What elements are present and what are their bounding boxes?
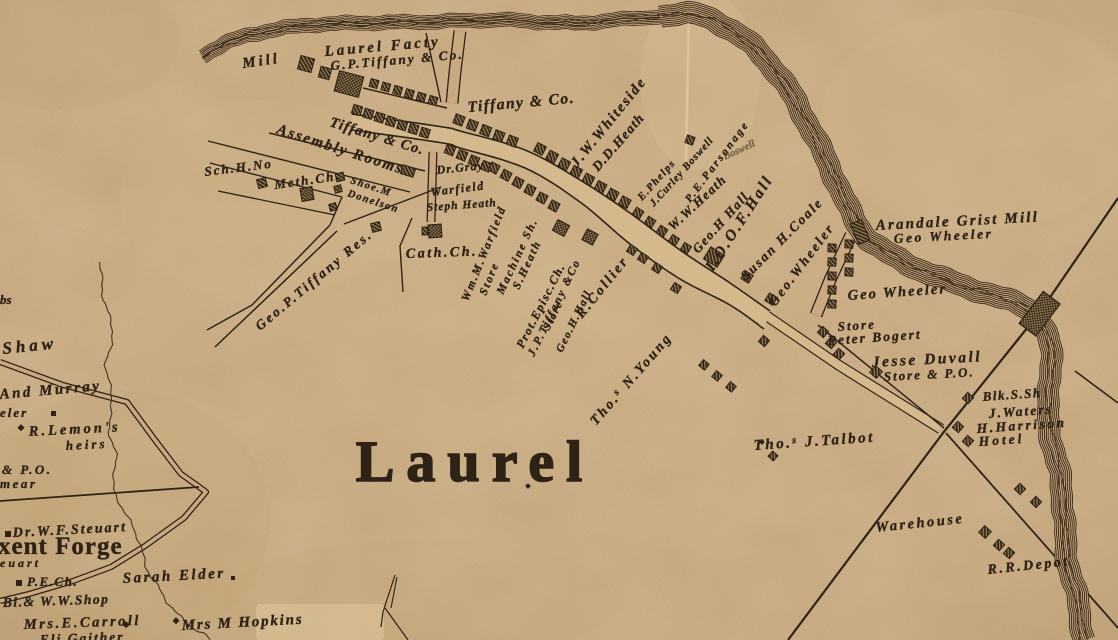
svg-text:Eli Gaither: Eli Gaither	[39, 629, 125, 640]
svg-text:P.E.Ch.: P.E.Ch.	[27, 574, 78, 589]
svg-text:eler: eler	[0, 405, 28, 420]
svg-text:euart: euart	[0, 556, 41, 570]
svg-text:mear: mear	[0, 476, 37, 491]
svg-text:Cath.Ch.: Cath.Ch.	[406, 244, 479, 262]
svg-text:Laurel: Laurel	[356, 429, 595, 494]
svg-text:& P.O.: & P.O.	[2, 462, 53, 477]
svg-text:bs: bs	[0, 292, 12, 307]
svg-text:heirs: heirs	[65, 436, 107, 453]
